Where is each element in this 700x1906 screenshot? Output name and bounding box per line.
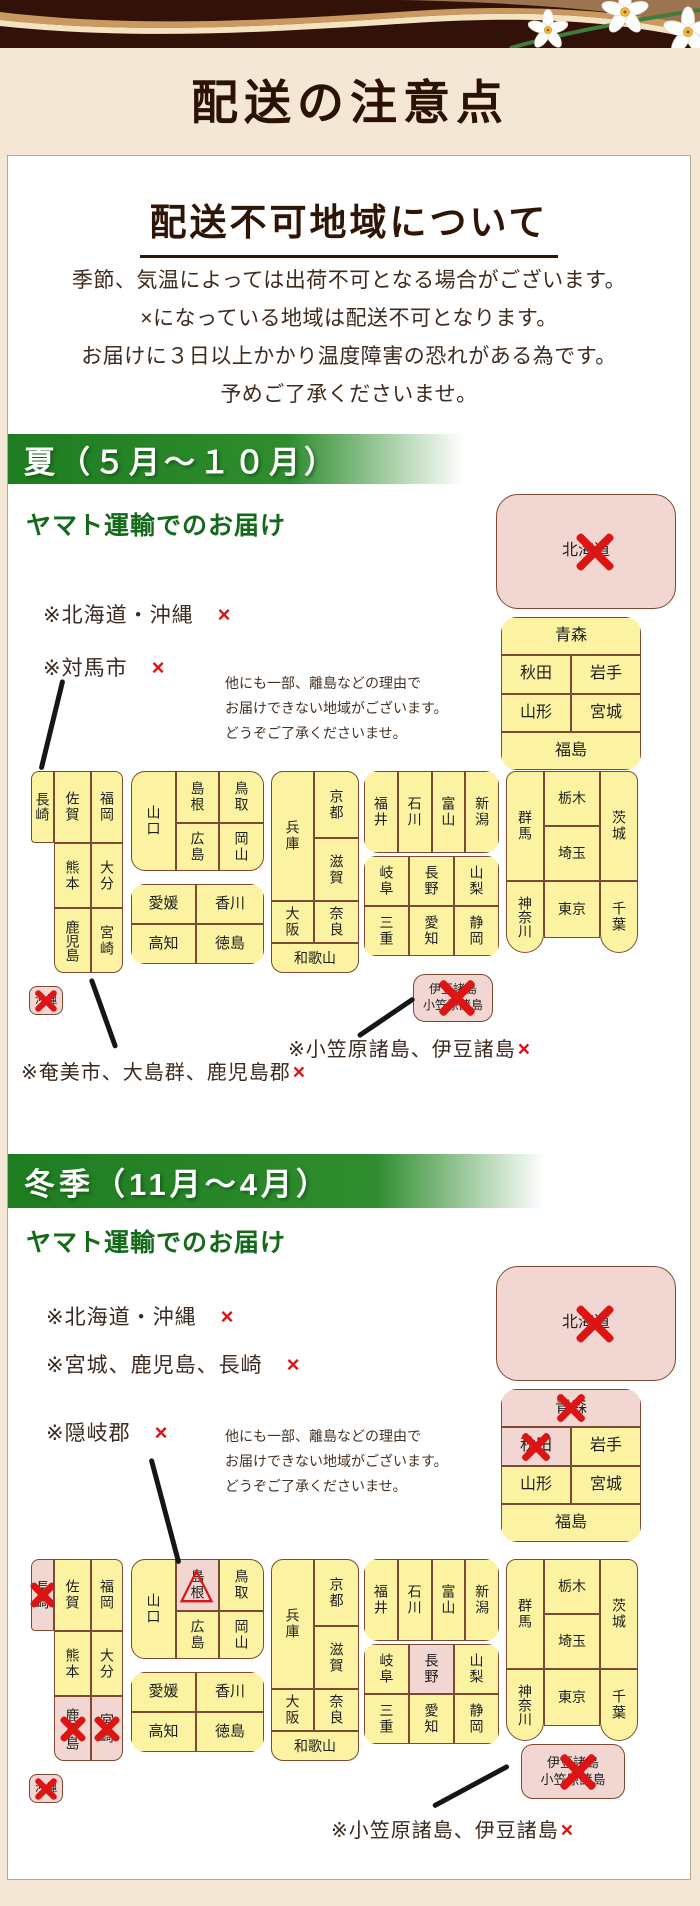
izu-islands-box: 伊豆諸島 小笠原諸島 (521, 1744, 625, 1799)
pref-cell-kagawa: 香川 (196, 884, 264, 924)
izu-line1: 伊豆諸島 (547, 1755, 599, 1772)
pref-cell-yamaguchi: 山口 (131, 771, 176, 871)
pref-cell-nara: 奈良 (314, 1689, 359, 1731)
pref-cell-tokyo: 東京 (544, 1669, 600, 1726)
pref-cell-okinawa: 沖縄 (29, 986, 63, 1015)
pref-cell-mie: 三重 (364, 906, 409, 956)
pref-cell-saga: 佐賀 (54, 1559, 91, 1631)
cross-icon: × (561, 1819, 574, 1842)
intro-line: ×になっている地域は配送不可となります。 (8, 300, 690, 338)
banner-decoration (0, 0, 700, 48)
pref-cell-hyogo: 兵庫 (271, 771, 314, 901)
pref-cell-tottori: 鳥取 (219, 1559, 264, 1611)
intro-line: 予めご了承くださいませ。 (8, 376, 690, 414)
pref-cell-chiba: 千葉 (600, 1669, 638, 1741)
pref-cell-aichi: 愛知 (409, 906, 454, 956)
pref-cell-fukuoka: 福岡 (91, 1559, 123, 1631)
region-block-shikoku: 愛媛 香川 高知 徳島 (131, 1672, 264, 1752)
pref-cell-shiga: 滋賀 (314, 838, 359, 901)
mainland-map: 長崎 佐賀 福岡 熊本 大分 鹿児島 宮崎 山口 島根 広島 鳥取 岡山 愛媛 … (8, 1559, 692, 1814)
pref-cell-okinawa: 沖縄 (29, 1774, 63, 1803)
pref-cell-fukui: 福井 (364, 1559, 398, 1641)
pref-cell-kagoshima: 鹿児島 (54, 908, 91, 973)
pref-cell-miyazaki: 宮崎 (91, 908, 123, 973)
pref-cell-shimane: 島根 (176, 1559, 219, 1611)
pref-cell-tochigi: 栃木 (544, 1559, 600, 1614)
pref-cell-gunma: 群馬 (506, 771, 544, 881)
pref-cell-osaka: 大阪 (271, 901, 314, 943)
pref-cell-shimane: 島根 (176, 771, 219, 823)
region-block-tohoku: 青森 秋田 岩手 山形 宮城 福島 (501, 1389, 641, 1542)
pref-cell-tokushima: 徳島 (196, 1712, 264, 1752)
pref-cell-wakayama: 和歌山 (271, 943, 359, 973)
footnote: ※小笠原諸島、伊豆諸島× (331, 1814, 574, 1843)
pref-cell-kanagawa: 神奈川 (506, 881, 544, 953)
region-block-chugoku: 山口 島根 広島 鳥取 岡山 (131, 1559, 264, 1659)
izu-islands-box: 伊豆諸島 小笠原諸島 (413, 974, 493, 1022)
izu-line2: 小笠原諸島 (540, 1772, 605, 1789)
pref-cell-miyagi: 宮城 (571, 1466, 641, 1504)
pref-cell-ibaraki: 茨城 (600, 771, 638, 881)
pref-cell-yamagata: 山形 (501, 694, 571, 732)
pref-cell-oita: 大分 (91, 1631, 123, 1696)
pref-cell-kagoshima: 鹿児島 (54, 1696, 91, 1761)
pref-cell-niigata: 新潟 (465, 1559, 499, 1641)
pref-cell-yamaguchi: 山口 (131, 1559, 176, 1659)
region-block-tohoku: 青森 秋田 岩手 山形 宮城 福島 (501, 617, 641, 770)
pref-cell-yamagata: 山形 (501, 1466, 571, 1504)
pref-cell-kochi: 高知 (131, 1712, 196, 1752)
region-block-shikoku: 愛媛 香川 高知 徳島 (131, 884, 264, 964)
pref-cell-toyama: 富山 (432, 771, 466, 853)
cross-icon: × (518, 1038, 531, 1061)
footnote: ※奄美市、大島群、鹿児島郡× (21, 1056, 306, 1085)
pref-cell-hiroshima: 広島 (176, 823, 219, 871)
cross-icon: × (293, 1061, 306, 1084)
pref-cell-niigata: 新潟 (465, 771, 499, 853)
pref-cell-ishikawa: 石川 (398, 1559, 432, 1641)
pref-cell-okayama: 岡山 (219, 823, 264, 871)
pref-cell-kyoto: 京都 (314, 1559, 359, 1626)
izu-line2: 小笠原諸島 (423, 998, 483, 1014)
pref-cell-ibaraki: 茨城 (600, 1559, 638, 1669)
pref-cell-yamanashi: 山梨 (454, 856, 499, 906)
pref-cell-gifu: 岐阜 (364, 856, 409, 906)
pref-cell-mie: 三重 (364, 1694, 409, 1744)
pref-cell-osaka: 大阪 (271, 1689, 314, 1731)
intro-line: お届けに３日以上かかり温度障害の恐れがある為です。 (8, 338, 690, 376)
pref-cell-toyama: 富山 (432, 1559, 466, 1641)
pref-cell-saitama: 埼玉 (544, 826, 600, 881)
pref-cell-aichi: 愛知 (409, 1694, 454, 1744)
pref-cell-fukushima: 福島 (501, 1504, 641, 1542)
pref-cell-gifu: 岐阜 (364, 1644, 409, 1694)
mainland-map: 長崎 佐賀 福岡 熊本 大分 鹿児島 宮崎 山口 島根 広島 鳥取 岡山 愛媛 … (8, 771, 692, 1026)
footnote: ※小笠原諸島、伊豆諸島× (288, 1033, 531, 1062)
region-block-tokai: 岐阜 長野 山梨 三重 愛知 静岡 (364, 856, 499, 956)
page-title: 配送の注意点 (0, 64, 700, 133)
pref-cell-ehime: 愛媛 (131, 884, 196, 924)
carrier-heading-winter: ヤマト運輸でのお届け (26, 1223, 286, 1259)
intro-line: 季節、気温によっては出荷不可となる場合がございます。 (8, 262, 690, 300)
season-bar-label: 夏（５月～１０月） (8, 437, 339, 482)
pref-cell-akita: 秋田 (501, 655, 571, 694)
pref-cell-wakayama: 和歌山 (271, 1731, 359, 1761)
pref-cell-tochigi: 栃木 (544, 771, 600, 826)
pref-cell-aomori: 青森 (501, 617, 641, 655)
pref-cell-shizuoka: 静岡 (454, 1694, 499, 1744)
region-block-hokkaido: 北海道 (496, 494, 676, 609)
region-block-chugoku: 山口 島根 広島 鳥取 岡山 (131, 771, 264, 871)
pref-cell-chiba: 千葉 (600, 881, 638, 953)
pref-cell-fukuoka: 福岡 (91, 771, 123, 843)
region-block-hokuriku: 福井 石川 富山 新潟 (364, 1559, 499, 1641)
header-banner (0, 0, 700, 48)
pref-cell-iwate: 岩手 (571, 655, 641, 694)
pref-cell-fukushima: 福島 (501, 732, 641, 770)
pref-cell-shizuoka: 静岡 (454, 906, 499, 956)
pref-cell-tottori: 鳥取 (219, 771, 264, 823)
pref-cell-miyazaki: 宮崎 (91, 1696, 123, 1761)
pref-cell-kagawa: 香川 (196, 1672, 264, 1712)
region-block-kanto: 群馬 栃木 埼玉 茨城 神奈川 東京 千葉 (506, 1559, 638, 1741)
section-heading: 配送不可地域について (8, 192, 690, 258)
pref-cell-hokkaido: 北海道 (496, 494, 676, 609)
pref-cell-saga: 佐賀 (54, 771, 91, 843)
season-bar-summer: 夏（５月～１０月） (8, 434, 678, 484)
pref-cell-nara: 奈良 (314, 901, 359, 943)
pref-cell-hokkaido: 北海道 (496, 1266, 676, 1381)
region-block-kyushu: 長崎 佐賀 福岡 熊本 大分 鹿児島 宮崎 (31, 771, 123, 973)
pref-cell-yamanashi: 山梨 (454, 1644, 499, 1694)
region-block-hokuriku: 福井 石川 富山 新潟 (364, 771, 499, 853)
pref-cell-akita: 秋田 (501, 1427, 571, 1466)
season-bar-winter: 冬季（11月～4月） (8, 1154, 678, 1208)
pref-cell-iwate: 岩手 (571, 1427, 641, 1466)
pref-cell-oita: 大分 (91, 843, 123, 908)
pref-cell-kyoto: 京都 (314, 771, 359, 838)
pref-cell-okayama: 岡山 (219, 1611, 264, 1659)
pref-cell-nagano: 長野 (409, 856, 454, 906)
content-panel: 配送不可地域について 季節、気温によっては出荷不可となる場合がございます。 ×に… (7, 155, 691, 1880)
region-block-hokkaido: 北海道 (496, 1266, 676, 1381)
region-block-kansai: 兵庫 京都 滋賀 大阪 奈良 和歌山 (271, 1559, 359, 1761)
pref-cell-tokushima: 徳島 (196, 924, 264, 964)
pref-cell-ishikawa: 石川 (398, 771, 432, 853)
pref-cell-hyogo: 兵庫 (271, 1559, 314, 1689)
pref-cell-nagasaki: 長崎 (31, 1559, 54, 1631)
japan-map-summer: 北海道 青森 秋田 岩手 山形 宮城 福島 長崎 佐賀 福岡 熊本 大分 鹿児島… (8, 494, 692, 1114)
pref-cell-ehime: 愛媛 (131, 1672, 196, 1712)
season-bar-label: 冬季（11月～4月） (8, 1159, 331, 1204)
japan-map-winter: 北海道 青森 秋田 岩手 山形 宮城 福島 長崎 佐賀 福岡 熊本 大分 鹿児島… (8, 1266, 692, 1906)
intro-text: 季節、気温によっては出荷不可となる場合がございます。 ×になっている地域は配送不… (8, 262, 690, 414)
pref-cell-shiga: 滋賀 (314, 1626, 359, 1689)
region-block-kansai: 兵庫 京都 滋賀 大阪 奈良 和歌山 (271, 771, 359, 973)
region-block-kyushu: 長崎 佐賀 福岡 熊本 大分 鹿児島 宮崎 (31, 1559, 123, 1761)
pref-cell-kochi: 高知 (131, 924, 196, 964)
pref-cell-nagasaki: 長崎 (31, 771, 54, 843)
pref-cell-nagano: 長野 (409, 1644, 454, 1694)
pref-cell-kumamoto: 熊本 (54, 843, 91, 908)
pref-cell-aomori: 青森 (501, 1389, 641, 1427)
pref-cell-tokyo: 東京 (544, 881, 600, 938)
pref-cell-hiroshima: 広島 (176, 1611, 219, 1659)
region-block-tokai: 岐阜 長野 山梨 三重 愛知 静岡 (364, 1644, 499, 1744)
pref-cell-miyagi: 宮城 (571, 694, 641, 732)
pref-cell-kanagawa: 神奈川 (506, 1669, 544, 1741)
delivery-notice-page: { "header": { "title": "配送の注意点" }, "pane… (0, 0, 700, 1900)
pref-cell-kumamoto: 熊本 (54, 1631, 91, 1696)
pref-cell-saitama: 埼玉 (544, 1614, 600, 1669)
izu-line1: 伊豆諸島 (429, 982, 477, 998)
pref-cell-gunma: 群馬 (506, 1559, 544, 1669)
pref-cell-fukui: 福井 (364, 771, 398, 853)
region-block-kanto: 群馬 栃木 埼玉 茨城 神奈川 東京 千葉 (506, 771, 638, 953)
